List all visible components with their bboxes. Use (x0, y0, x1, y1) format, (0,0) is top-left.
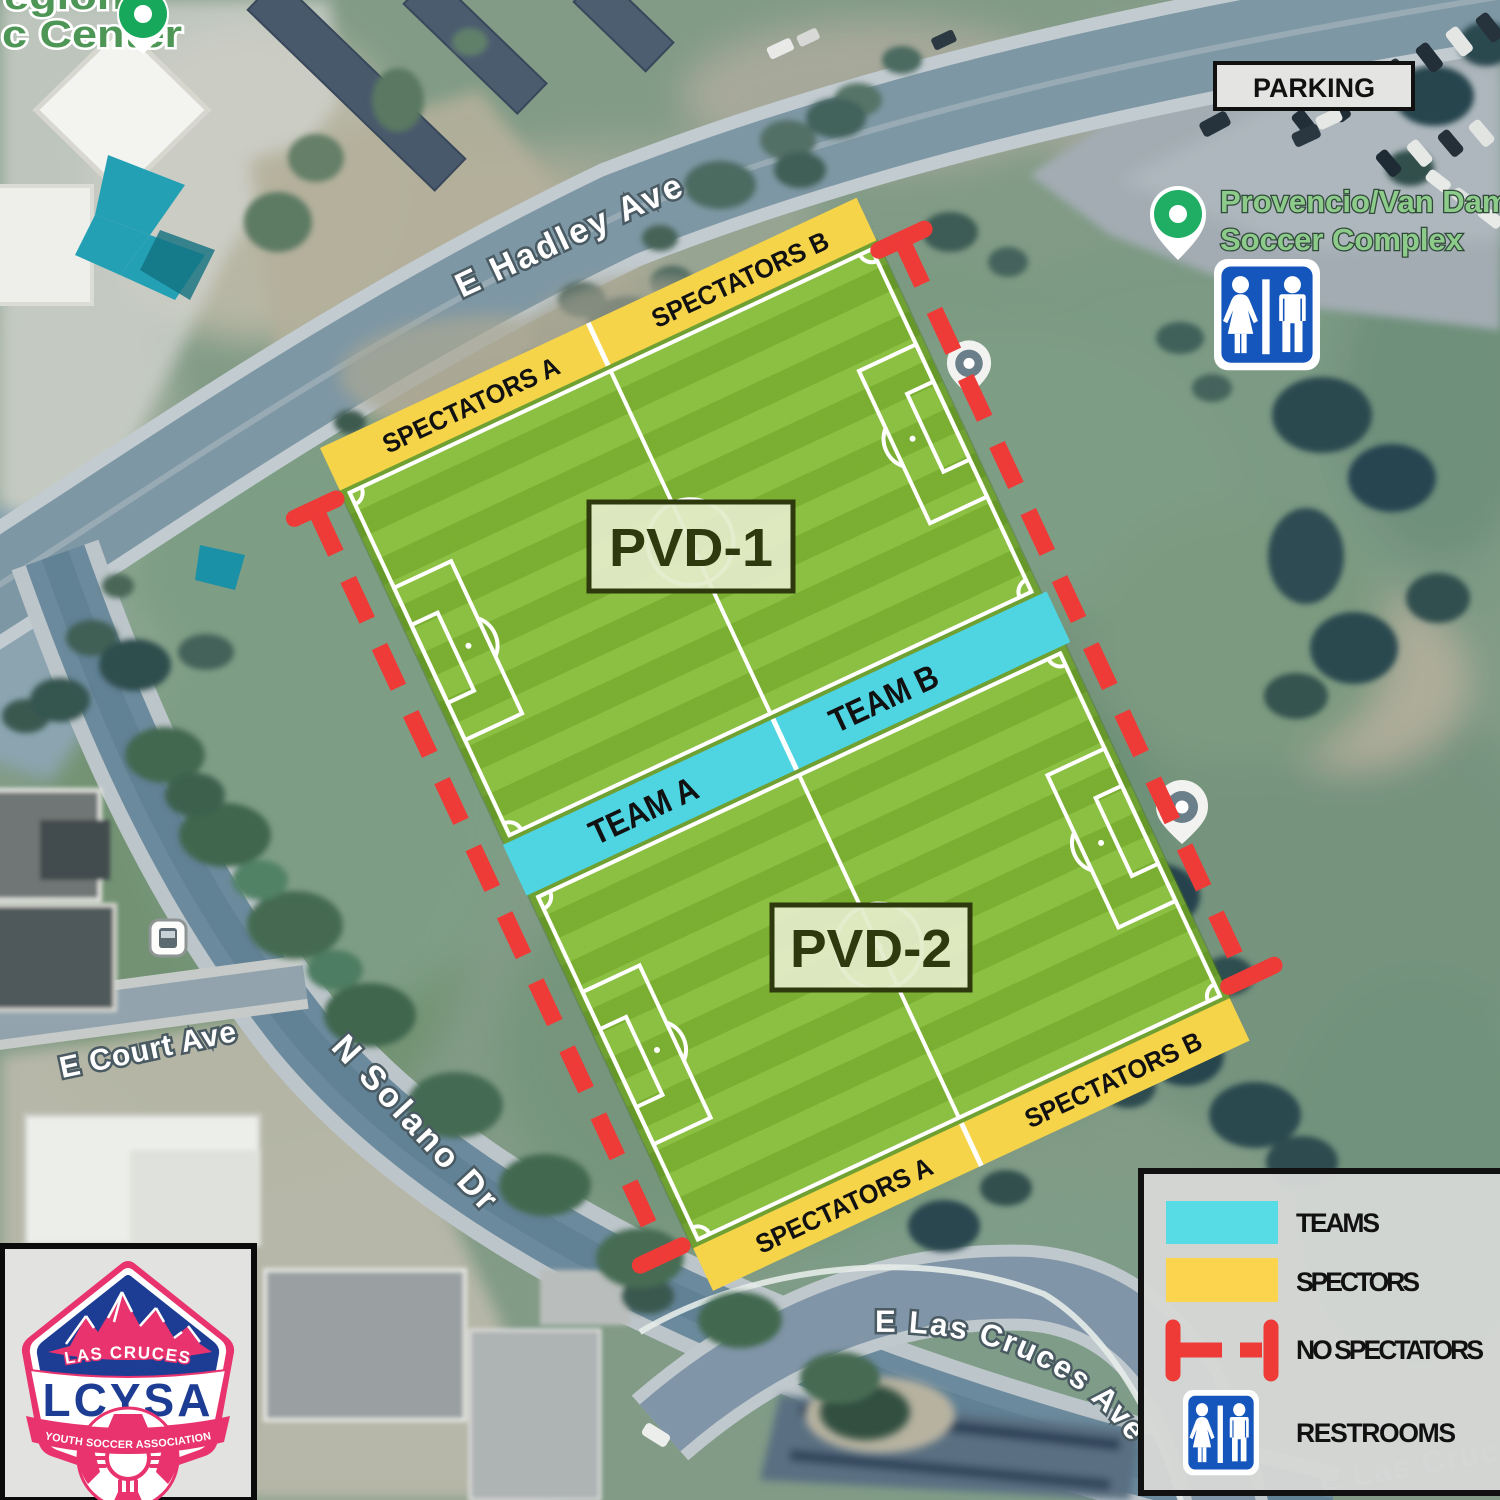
svg-text:TEAMS: TEAMS (1296, 1208, 1380, 1238)
svg-text:PVD-2: PVD-2 (790, 919, 952, 979)
svg-text:PVD-1: PVD-1 (609, 518, 773, 578)
svg-text:NO SPECTATORS: NO SPECTATORS (1296, 1335, 1484, 1365)
svg-text:Soccer Complex: Soccer Complex (1220, 222, 1464, 257)
svg-text:PARKING: PARKING (1253, 73, 1375, 103)
svg-text:Provencio/Van Damme: Provencio/Van Damme (1220, 184, 1500, 219)
svg-text:SPECTORS: SPECTORS (1296, 1267, 1420, 1297)
svg-text:RESTROOMS: RESTROOMS (1296, 1418, 1456, 1448)
